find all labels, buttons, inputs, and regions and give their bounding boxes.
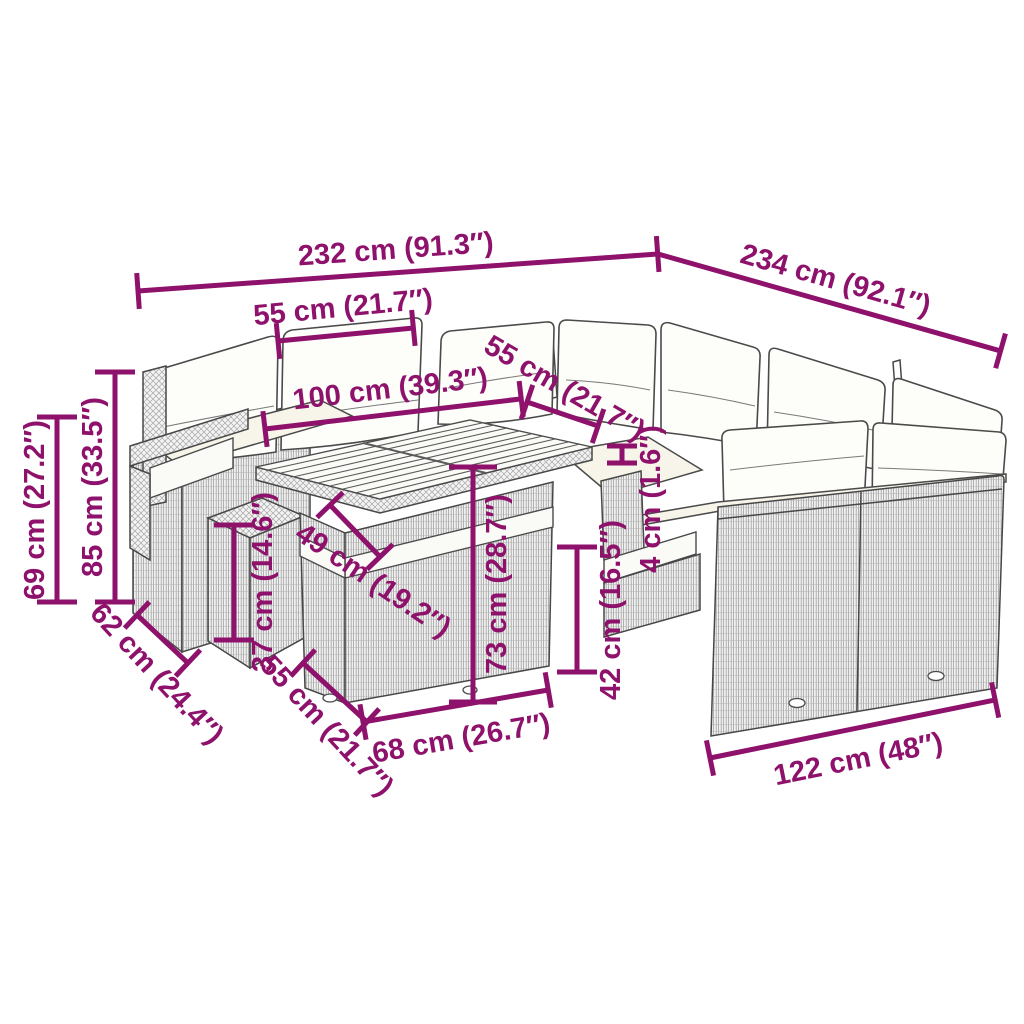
- dim-label: 73 cm (28.7″): [481, 494, 513, 674]
- dim-label: 69 cm (27.2″): [19, 420, 51, 600]
- dim-label: 85 cm (33.5″): [77, 397, 109, 577]
- dim-label: 37 cm (14.6″): [247, 492, 279, 672]
- dim-label: 4 cm (1.6″): [635, 425, 667, 573]
- left-armrest-post: [130, 466, 150, 560]
- foot-cap: [928, 672, 944, 681]
- dim-total-height: 85 cm (33.5″): [77, 372, 135, 602]
- dim-label: 234 cm (92.1″): [737, 238, 934, 322]
- dim-seat-height: 42 cm (16.5″): [557, 520, 627, 700]
- ottoman-side: [208, 518, 250, 668]
- furniture-dimension-drawing: 232 cm (91.3″) 234 cm (92.1″) 55 cm (21.…: [0, 0, 1024, 1024]
- foot-cap: [789, 699, 805, 708]
- dim-label: 42 cm (16.5″): [595, 520, 627, 700]
- dim-armrest-height: 69 cm (27.2″): [19, 417, 77, 602]
- dim-label: 122 cm (48″): [771, 727, 946, 793]
- dimension-diagram-canvas: 232 cm (91.3″) 234 cm (92.1″) 55 cm (21.…: [0, 0, 1024, 1024]
